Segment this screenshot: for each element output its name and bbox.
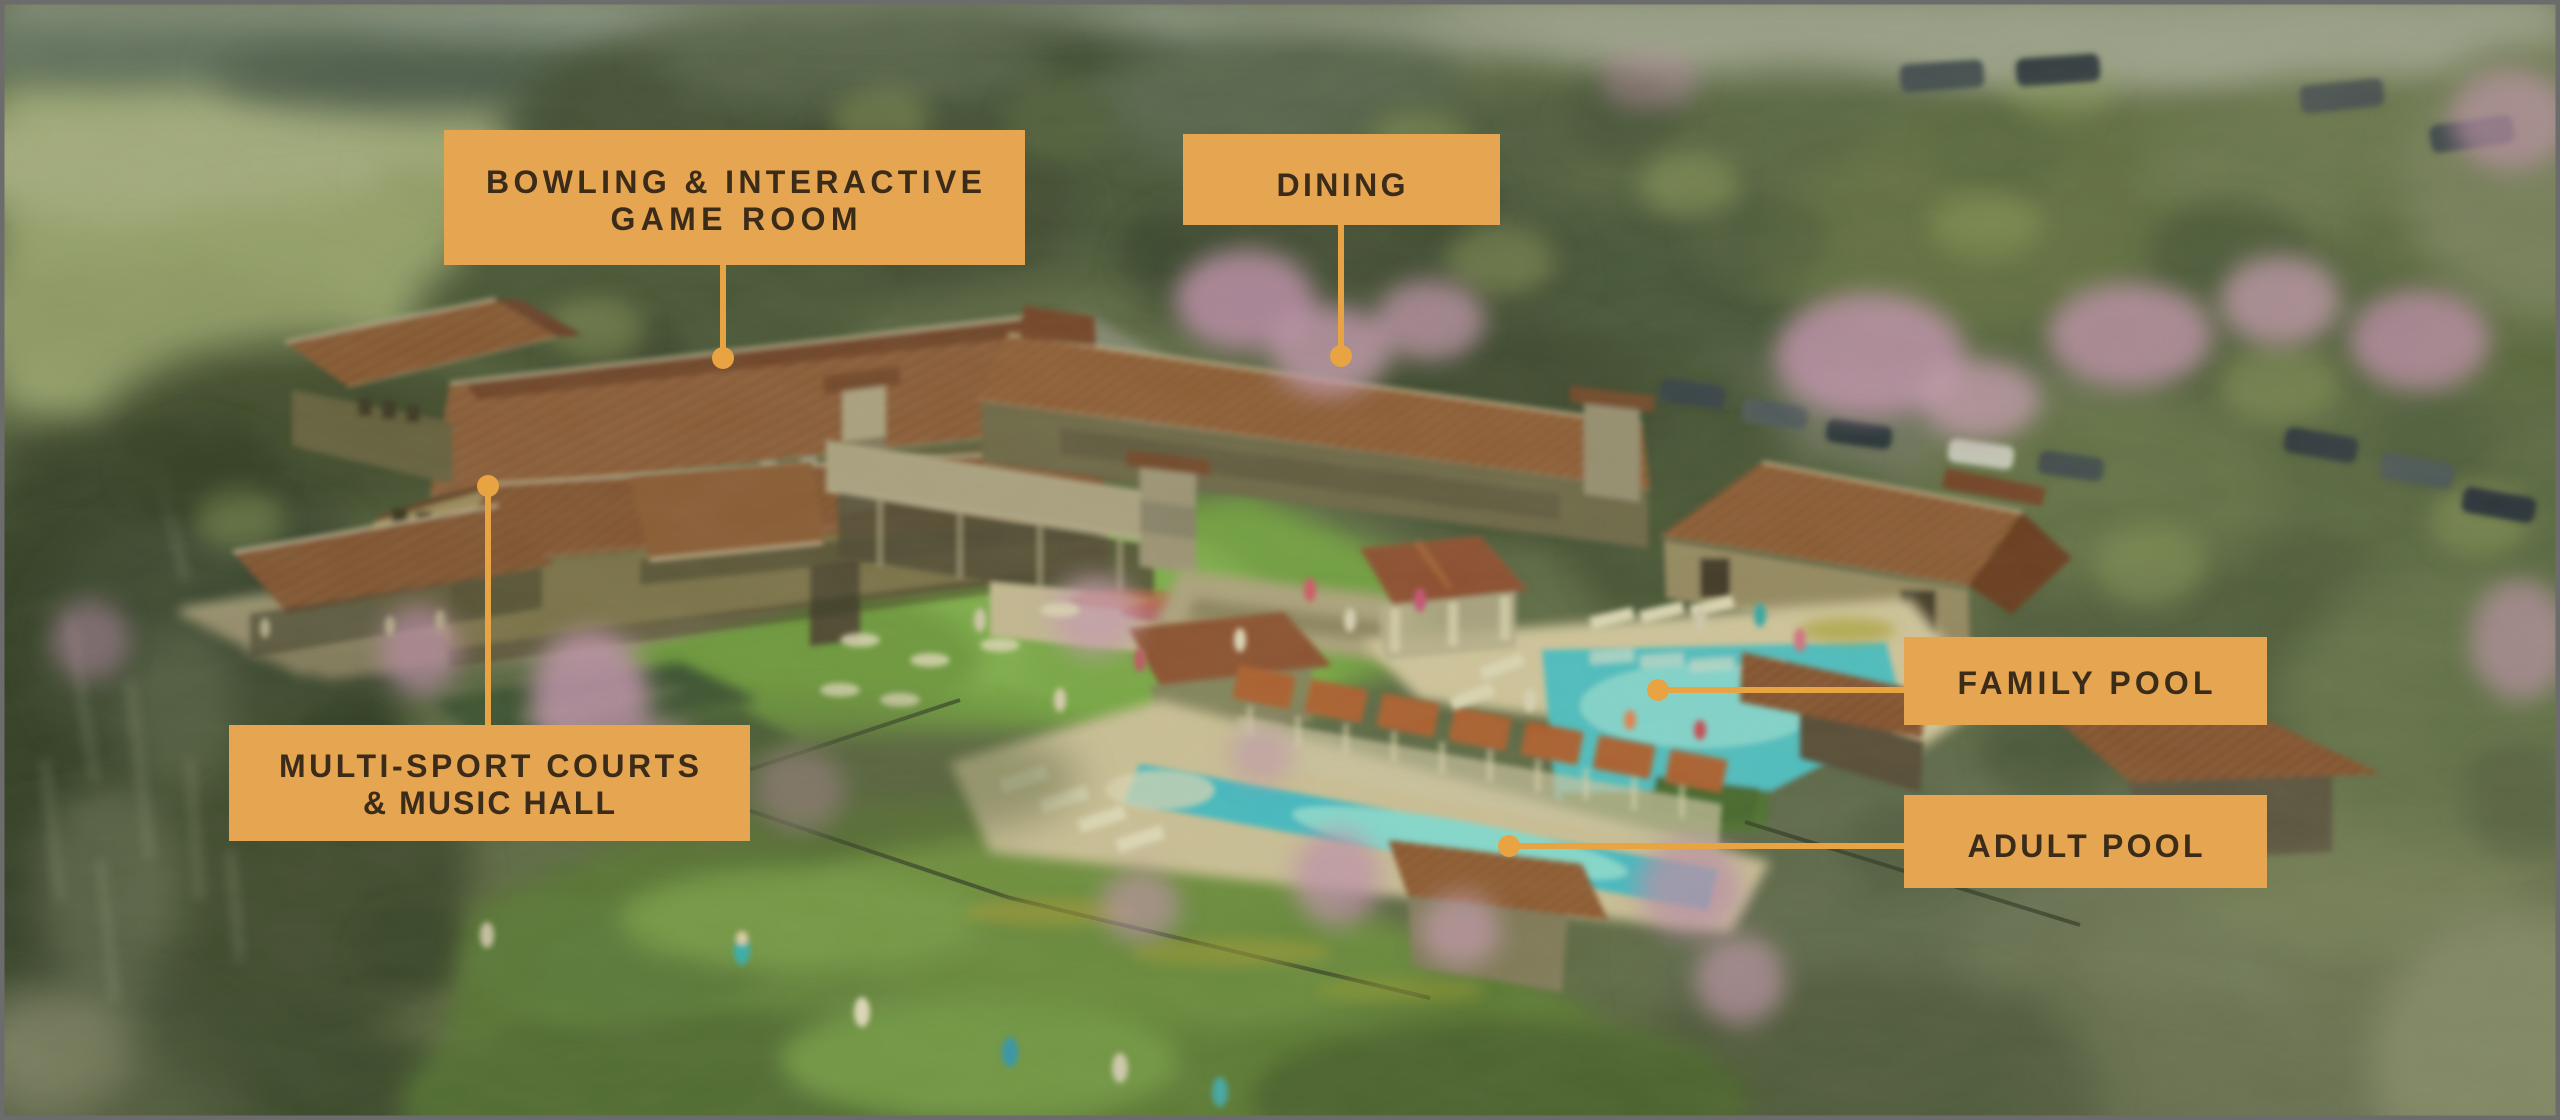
- svg-text:MULTI-SPORT COURTS: MULTI-SPORT COURTS: [279, 748, 699, 784]
- svg-text:DINING: DINING: [1277, 167, 1406, 203]
- svg-text:GAME ROOM: GAME ROOM: [611, 201, 858, 237]
- svg-text:FAMILY POOL: FAMILY POOL: [1958, 665, 2213, 701]
- svg-text:& MUSIC HALL: & MUSIC HALL: [363, 785, 615, 821]
- svg-text:ADULT POOL: ADULT POOL: [1968, 828, 2203, 864]
